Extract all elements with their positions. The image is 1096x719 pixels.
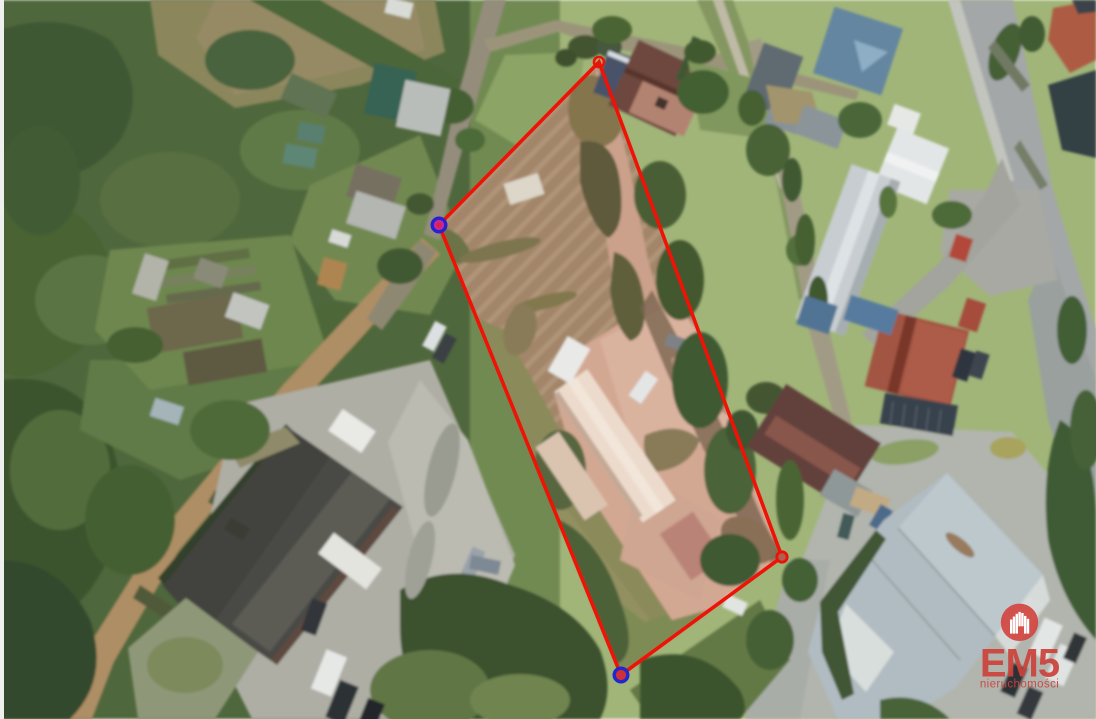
svg-text:nieruchomości: nieruchomości xyxy=(980,679,1059,691)
